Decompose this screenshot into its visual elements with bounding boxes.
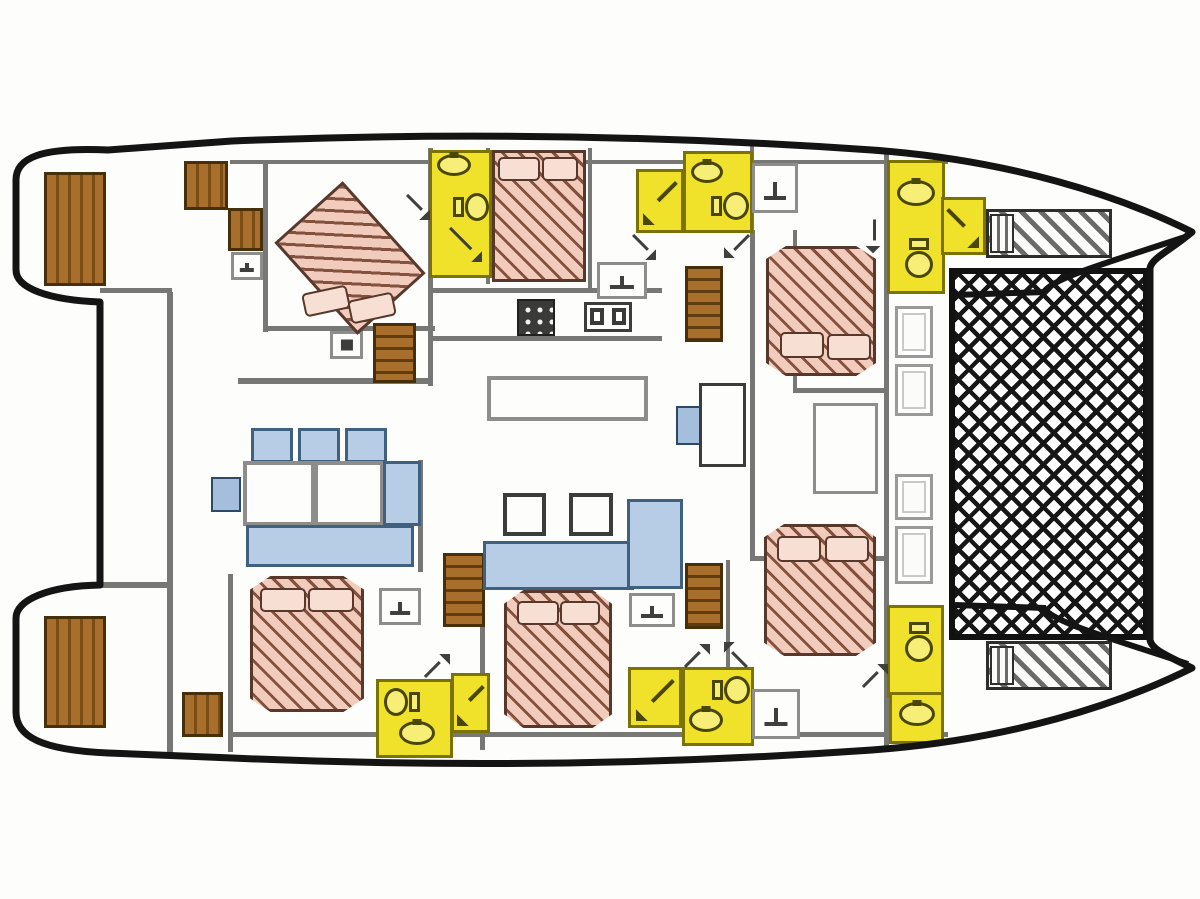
- catamaran-floor-plan: [0, 0, 1200, 899]
- wall-bottom-deck: [228, 732, 948, 737]
- toilet-fwd-stbd: [905, 238, 933, 278]
- pillow-aft-center-1: [517, 601, 559, 625]
- nav-desk: [699, 383, 746, 467]
- pillow-fwd-stbd-1: [780, 332, 824, 358]
- wall-stern-upper: [100, 288, 172, 293]
- pillow-fwd-center-1: [498, 157, 540, 181]
- door-arrow-aft-stbd: [862, 664, 888, 690]
- pillow-aft-stbd-1: [777, 536, 821, 562]
- deck-hatch-1: [895, 306, 933, 358]
- door-arrow-fwd-center-1: [630, 234, 656, 260]
- dinette-table-right: [314, 461, 384, 526]
- wall-stbd-corridor-left: [750, 230, 755, 560]
- door-arrow-aft-port: [424, 654, 450, 680]
- wall-fwd-port-cabin-left: [263, 162, 268, 332]
- sink-fwd-center: [691, 161, 723, 183]
- salon-stool-2: [569, 493, 613, 536]
- sink-aft-center: [689, 708, 723, 732]
- dinette-seatback-2: [298, 428, 340, 463]
- tv-locker: [330, 331, 363, 359]
- sink-aft-port: [399, 721, 435, 745]
- vanity-galley: [597, 262, 647, 299]
- dinette-seatback-1: [251, 428, 293, 463]
- vanity-aft-stbd-corridor: [752, 689, 800, 739]
- vanity-fwd-stbd-corridor: [752, 163, 798, 213]
- wall-stbd-mid-room-top: [793, 388, 888, 393]
- door-arrow-aft-center-1: [684, 644, 710, 670]
- door-arrow-fwd-center-2: [724, 232, 750, 258]
- vanity-aft-center-cabin: [629, 593, 675, 627]
- vanity-aft-port-cabin: [379, 588, 421, 625]
- shower-fwd-center: [636, 169, 684, 233]
- steps-port-aft-2: [228, 208, 263, 251]
- sink-aft-stbd: [899, 702, 935, 726]
- bow-lounger-bottom-end: [990, 646, 1014, 685]
- stairs-port-fwd: [373, 323, 416, 383]
- pillow-aft-port-2: [308, 588, 354, 612]
- wall-center-bed-right: [588, 148, 592, 290]
- pillow-aft-stbd-2: [825, 536, 869, 562]
- wall-aft-port-cabin-left: [228, 574, 233, 752]
- toilet-aft-port: [384, 688, 420, 716]
- stairs-stbd-aft: [685, 563, 723, 629]
- shower-arrow-fwd-port: [446, 226, 482, 262]
- dinette-side-seat: [383, 461, 421, 526]
- swim-platform-stbd: [44, 616, 106, 728]
- pillow-aft-center-2: [560, 601, 600, 625]
- toilet-aft-stbd: [905, 622, 933, 662]
- deck-plan-layer: [0, 0, 1200, 899]
- toilet-fwd-center: [711, 192, 749, 220]
- shower-aft-center: [628, 667, 682, 728]
- wall-stern-lower: [100, 582, 172, 588]
- toilet-fwd-port: [453, 193, 489, 221]
- salon-bench-vertical: [627, 499, 683, 589]
- wall-galley-bottom: [430, 336, 662, 341]
- bow-lounger-top-end: [990, 214, 1014, 253]
- stove: [517, 299, 555, 336]
- stbd-mid-berth: [813, 403, 878, 494]
- shower-aft-port: [451, 673, 490, 733]
- shower-fwd-stbd: [941, 197, 986, 255]
- salon-bench-horizontal: [483, 541, 634, 590]
- vanity-cockpit: [231, 252, 263, 280]
- steps-stbd-aft: [182, 692, 223, 737]
- galley-island: [487, 376, 648, 421]
- galley-double-sink: [584, 302, 632, 332]
- swim-platform-port: [44, 172, 106, 286]
- pillow-fwd-center-2: [542, 157, 578, 181]
- dinette-table-left: [243, 461, 315, 526]
- door-arrow-aft-center-2: [724, 642, 750, 668]
- dinette-seatback-3: [345, 428, 387, 463]
- dinette-bench: [246, 525, 414, 567]
- salon-window-port: [211, 477, 241, 512]
- door-arrow-fwd-port: [404, 194, 430, 220]
- trampoline-net: [949, 268, 1149, 640]
- sink-fwd-port: [437, 154, 471, 176]
- toilet-aft-center: [712, 676, 750, 704]
- stairs-port-aft: [443, 553, 485, 627]
- pillow-fwd-stbd-2: [827, 334, 871, 360]
- stairs-stbd-fwd: [685, 266, 723, 342]
- deck-hatch-2: [895, 364, 933, 416]
- pillow-aft-port-1: [260, 588, 306, 612]
- deck-hatch-3: [895, 474, 933, 520]
- steps-port-aft-1: [184, 161, 228, 210]
- deck-hatch-4: [895, 526, 933, 584]
- sink-fwd-stbd: [897, 180, 935, 206]
- salon-stool-1: [503, 493, 546, 536]
- wall-salon-left: [167, 292, 173, 754]
